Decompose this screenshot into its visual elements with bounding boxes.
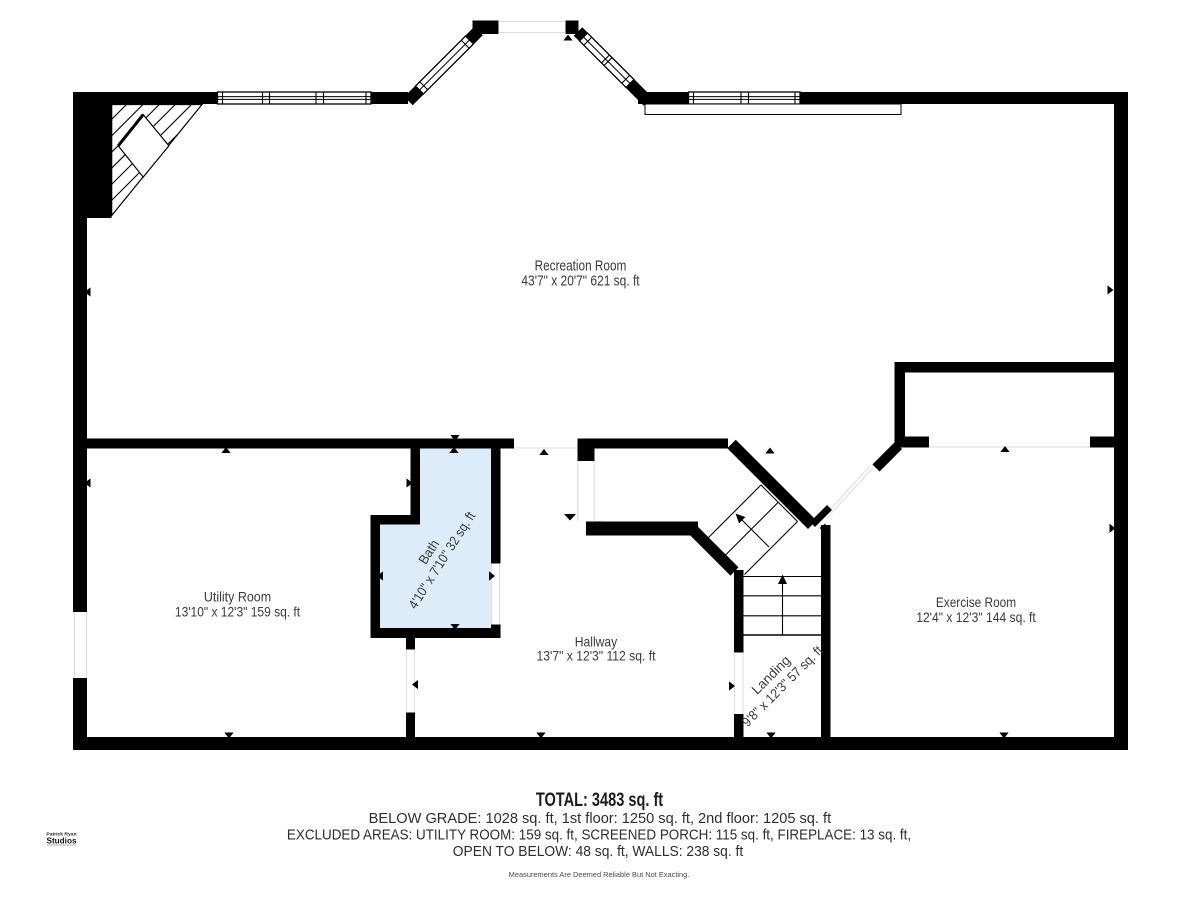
svg-text:OPEN TO BELOW: 48 sq. ft, WALL: OPEN TO BELOW: 48 sq. ft, WALLS: 238 sq.… xyxy=(453,844,743,860)
svg-text:BELOW GRADE: 1028 sq. ft, 1st: BELOW GRADE: 1028 sq. ft, 1st floor: 125… xyxy=(369,811,831,827)
svg-text:Studios: Studios xyxy=(46,836,76,845)
svg-text:12'4" x 12'3" 144 sq. ft: 12'4" x 12'3" 144 sq. ft xyxy=(916,609,1036,625)
svg-text:13'10" x 12'3" 159 sq. ft: 13'10" x 12'3" 159 sq. ft xyxy=(175,604,301,620)
svg-text:13'7" x 12'3" 112 sq. ft: 13'7" x 12'3" 112 sq. ft xyxy=(537,648,656,664)
svg-text:Exercise Room: Exercise Room xyxy=(936,594,1016,610)
svg-text:Utility Room: Utility Room xyxy=(204,589,271,605)
svg-text:Measurements Are Deemed Reliab: Measurements Are Deemed Reliable But Not… xyxy=(509,870,690,879)
svg-text:43'7" x 20'7" 621 sq. ft: 43'7" x 20'7" 621 sq. ft xyxy=(521,272,639,289)
svg-text:TOTAL: 3483 sq. ft: TOTAL: 3483 sq. ft xyxy=(536,789,664,810)
svg-text:EXCLUDED AREAS: UTILITY ROOM:: EXCLUDED AREAS: UTILITY ROOM: 159 sq. ft… xyxy=(287,826,911,843)
